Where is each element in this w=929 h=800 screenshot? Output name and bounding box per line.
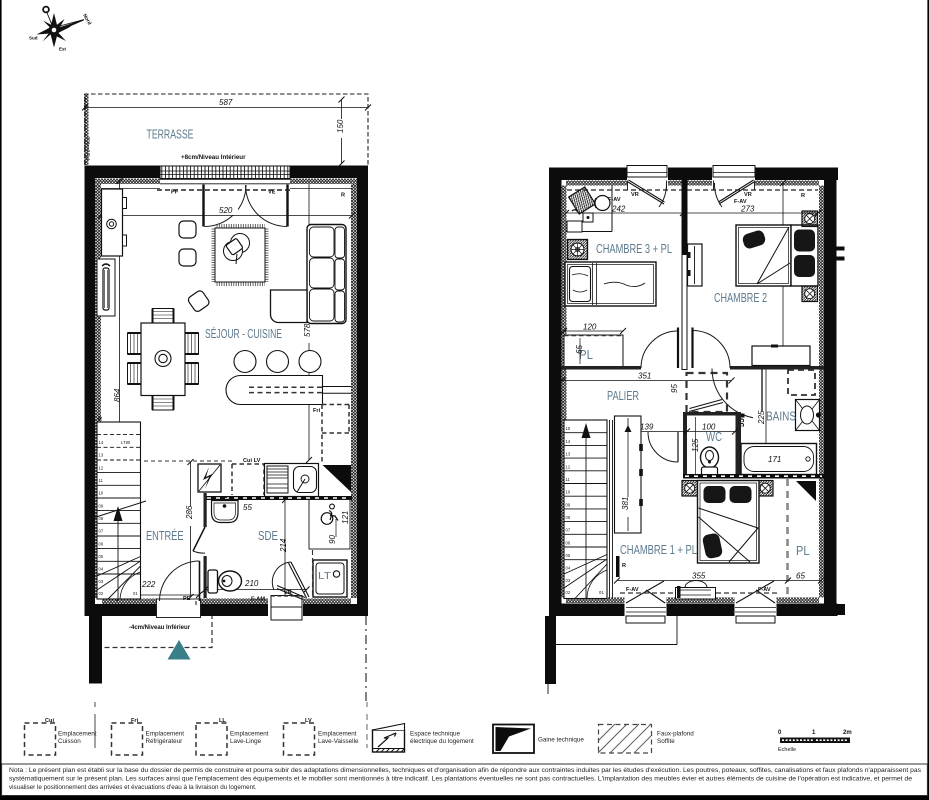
svg-text:10: 10 — [99, 491, 104, 496]
svg-text:VR: VR — [631, 192, 639, 198]
svg-text:Soffite: Soffite — [657, 738, 675, 745]
svg-text:587: 587 — [219, 98, 233, 107]
svg-text:PL: PL — [796, 544, 810, 558]
svg-text:242: 242 — [611, 205, 626, 214]
svg-text:14: 14 — [566, 439, 571, 444]
svg-text:SÉJOUR - CUISINE: SÉJOUR - CUISINE — [205, 326, 282, 341]
svg-text:Gaine technique: Gaine technique — [538, 737, 584, 744]
svg-text:PALIER: PALIER — [607, 389, 639, 403]
svg-text:LT80: LT80 — [121, 440, 131, 445]
svg-text:R: R — [341, 193, 345, 199]
svg-text:Lave-Linge: Lave-Linge — [230, 738, 262, 745]
svg-text:02: 02 — [566, 590, 571, 595]
svg-text:13: 13 — [566, 452, 571, 457]
svg-text:02: 02 — [99, 591, 104, 596]
svg-text:01: 01 — [133, 591, 138, 596]
svg-text:CHAMBRE 3 + PL: CHAMBRE 3 + PL — [596, 242, 672, 256]
svg-text:04: 04 — [99, 567, 104, 572]
svg-text:225: 225 — [757, 410, 766, 425]
svg-text:Pare—vue: Pare—vue — [86, 136, 92, 160]
svg-text:05: 05 — [99, 554, 104, 559]
svg-text:150: 150 — [336, 119, 345, 133]
svg-text:Emplacement: Emplacement — [230, 731, 269, 738]
svg-text:F-AM: F-AM — [251, 597, 265, 603]
svg-text:F-AV: F-AV — [758, 587, 771, 593]
svg-text:12: 12 — [566, 464, 571, 469]
svg-text:06: 06 — [566, 540, 571, 545]
svg-text:Emplacement: Emplacement — [146, 731, 185, 738]
svg-text:08: 08 — [99, 516, 104, 521]
svg-text:Cui: Cui — [45, 718, 54, 724]
svg-text:TERRASSE: TERRASSE — [147, 128, 194, 142]
svg-text:03: 03 — [566, 578, 571, 583]
svg-text:LV: LV — [305, 718, 312, 724]
svg-text:09: 09 — [99, 503, 104, 508]
svg-text:90: 90 — [328, 535, 337, 544]
svg-text:355: 355 — [692, 572, 706, 581]
svg-text:Echelle: Echelle — [778, 747, 796, 753]
svg-text:-4cm/Niveau Inférieur: -4cm/Niveau Inférieur — [129, 625, 191, 631]
svg-text:Réfrigérateur: Réfrigérateur — [146, 738, 183, 745]
svg-text:R: R — [801, 193, 805, 199]
svg-text:F-AV: F-AV — [626, 587, 639, 593]
svg-text:11: 11 — [566, 477, 571, 482]
svg-text:électrique du logement: électrique du logement — [410, 738, 474, 745]
svg-text:06: 06 — [99, 541, 104, 546]
svg-text:15: 15 — [566, 426, 571, 431]
svg-text:10: 10 — [566, 490, 571, 495]
svg-text:95: 95 — [670, 384, 679, 393]
svg-text:09: 09 — [566, 502, 571, 507]
svg-text:VR: VR — [284, 590, 292, 596]
svg-text:286: 286 — [185, 505, 194, 520]
svg-text:07: 07 — [99, 529, 104, 534]
svg-text:03: 03 — [99, 579, 104, 584]
svg-text:14: 14 — [99, 440, 104, 445]
svg-text:PE: PE — [183, 596, 191, 602]
svg-text:Nota : Le présent plan est éta: Nota : Le présent plan est établi sur la… — [9, 767, 921, 774]
svg-text:578: 578 — [303, 323, 312, 337]
svg-text:Fri: Fri — [313, 408, 321, 414]
svg-text:WC: WC — [706, 430, 722, 444]
svg-text:11: 11 — [99, 478, 104, 483]
svg-text:273: 273 — [740, 205, 755, 214]
svg-text:08: 08 — [566, 515, 571, 520]
svg-text:351: 351 — [638, 372, 651, 381]
svg-text:visualiser le positionnement d: visualiser le positionnement des arrivée… — [9, 784, 257, 791]
svg-text:Cuisson: Cuisson — [58, 738, 81, 745]
svg-text:13: 13 — [99, 453, 104, 458]
svg-text:Faux-plafond: Faux-plafond — [657, 731, 694, 738]
svg-text:CHAMBRE 1 + PL: CHAMBRE 1 + PL — [620, 543, 697, 557]
svg-text:ENTRÉE: ENTRÉE — [146, 528, 184, 543]
svg-text:Emplacement: Emplacement — [58, 731, 97, 738]
svg-text:R: R — [98, 417, 102, 423]
svg-text:SDE: SDE — [258, 529, 278, 543]
svg-text:65: 65 — [796, 572, 805, 581]
svg-text:65: 65 — [575, 345, 584, 354]
svg-text:01: 01 — [599, 590, 604, 595]
svg-text:520: 520 — [219, 206, 233, 215]
svg-text:04: 04 — [566, 566, 571, 571]
svg-text:+8cm/Niveau Intérieur: +8cm/Niveau Intérieur — [181, 154, 246, 161]
svg-text:12: 12 — [99, 465, 104, 470]
svg-text:121: 121 — [341, 511, 350, 524]
svg-text:R: R — [622, 563, 626, 569]
svg-text:LL: LL — [219, 718, 226, 724]
svg-text:Est: Est — [59, 47, 67, 52]
svg-text:222: 222 — [141, 580, 156, 589]
svg-text:BAINS: BAINS — [766, 410, 796, 424]
svg-text:VR: VR — [744, 192, 752, 198]
svg-text:CHAMBRE 2: CHAMBRE 2 — [714, 291, 767, 305]
svg-text:Fri: Fri — [131, 718, 139, 724]
svg-text:381: 381 — [621, 497, 630, 510]
svg-text:171: 171 — [768, 455, 781, 464]
svg-text:Emplacement: Emplacement — [318, 731, 357, 738]
svg-text:210: 210 — [244, 579, 259, 588]
svg-text:Lave-Vaisselle: Lave-Vaisselle — [318, 738, 359, 745]
svg-text:PF: PF — [171, 190, 179, 196]
svg-text:systématiquement sur le présen: systématiquement sur le présent plan. Le… — [9, 776, 913, 783]
svg-text:LT: LT — [318, 571, 331, 582]
svg-text:214: 214 — [279, 538, 288, 553]
svg-text:864: 864 — [113, 388, 122, 402]
svg-text:120: 120 — [583, 323, 597, 332]
svg-text:125: 125 — [691, 438, 700, 452]
svg-text:VE: VE — [268, 190, 276, 196]
svg-text:55: 55 — [243, 503, 252, 512]
svg-text:Sud: Sud — [29, 36, 38, 41]
svg-text:05: 05 — [566, 553, 571, 558]
svg-text:2m: 2m — [843, 730, 852, 736]
svg-text:07: 07 — [566, 528, 571, 533]
svg-text:Cui LV: Cui LV — [243, 458, 261, 464]
svg-text:Espace technique: Espace technique — [410, 731, 461, 738]
svg-text:139: 139 — [640, 423, 654, 432]
